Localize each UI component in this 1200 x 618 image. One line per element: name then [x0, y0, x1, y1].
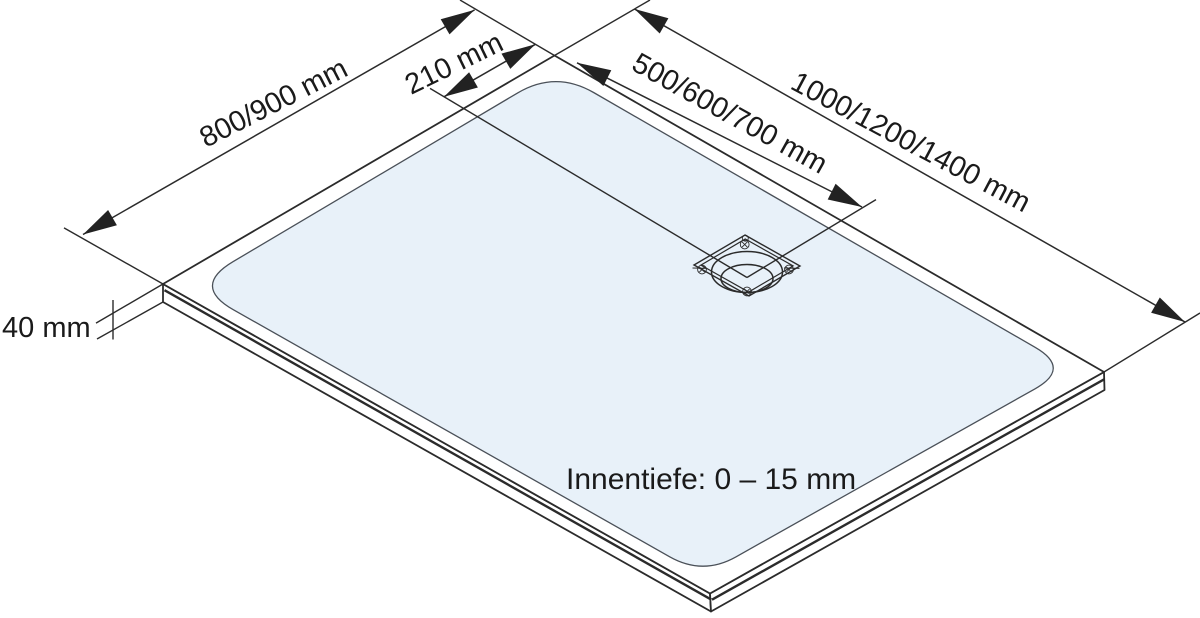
svg-text:Innentiefe: 0 – 15 mm: Innentiefe: 0 – 15 mm [566, 463, 856, 496]
svg-text:40 mm: 40 mm [2, 312, 91, 344]
